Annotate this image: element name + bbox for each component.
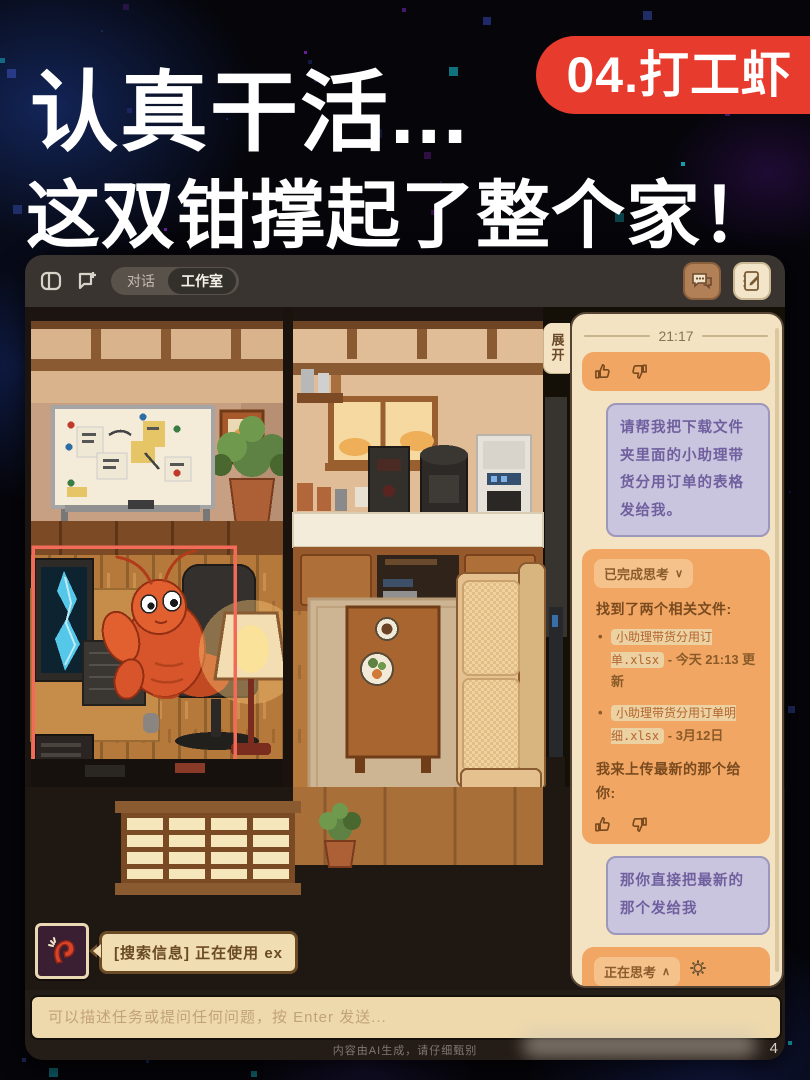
user-message-2: 那你直接把最新的那个发给我	[606, 856, 770, 935]
lobster-claw-icon	[45, 933, 79, 969]
episode-badge: 04.打工虾	[536, 36, 810, 114]
chevron-down-icon: ∨	[675, 567, 683, 580]
assistant-message-1: 已完成思考 ∨ 找到了两个相关文件: 小助理带货分用订单.xlsx - 今天 2…	[582, 549, 770, 844]
new-chat-button[interactable]	[75, 269, 99, 293]
new-chat-icon	[76, 270, 98, 292]
thumbs-up-button[interactable]	[594, 362, 613, 381]
status-speech-bubble: [搜索信息] 正在使用 ex	[99, 931, 298, 974]
notebook-edit-icon	[740, 269, 764, 293]
chevron-up-icon: ∧	[662, 965, 670, 978]
coffee-table	[347, 607, 439, 773]
messages-button[interactable]	[683, 262, 721, 300]
hero-header: 04.打工虾 认真干活... 这双钳撑起了整个家！	[0, 0, 810, 255]
hero-title-line2: 这双钳撑起了整个家！	[26, 156, 776, 263]
tab-chat[interactable]: 对话	[114, 268, 168, 294]
expand-tab-label: 展开	[548, 333, 567, 363]
message-input[interactable]	[46, 1008, 766, 1027]
ai-disclaimer: 内容由AI生成，请仔细甄别	[25, 1042, 785, 1058]
sidebar-toggle-button[interactable]	[39, 269, 63, 293]
hero-title-line1: 认真干活...	[30, 42, 469, 169]
thinking-collapse-pill[interactable]: 正在思考 ∧	[594, 957, 680, 986]
thought-collapse-pill[interactable]: 已完成思考 ∨	[594, 559, 693, 588]
lobster-avatar	[35, 923, 89, 979]
file-meta: - 3月12日	[668, 728, 724, 743]
user-message-1: 请帮我把下载文件夹里面的小助理带货分用订单的表格发给我。	[606, 403, 770, 537]
chat-bubbles-icon	[690, 269, 714, 293]
assistant-bubble-partial	[582, 352, 770, 391]
settings-gear-button[interactable]	[689, 959, 707, 977]
kitchen-living-room	[293, 321, 545, 867]
office-room	[31, 321, 303, 787]
sidebar-panel-icon	[40, 270, 62, 292]
expand-tab[interactable]: 展开	[544, 323, 570, 373]
thinking-pill-label: 正在思考	[604, 962, 656, 981]
assistant-message-2: 正在思考 ∧ 我已收	[582, 947, 770, 988]
file-list: 小助理带货分用订单.xlsx - 今天 21:13 更新 小助理带货分用订单明细…	[594, 626, 758, 748]
timestamp: 21:17	[658, 328, 693, 344]
page-number: 4	[770, 1040, 778, 1057]
app-window: 对话 工作室	[25, 255, 785, 1060]
window-footer: 内容由AI生成，请仔细甄别 4	[25, 1040, 785, 1060]
couch	[457, 563, 545, 797]
post-page: 04.打工虾 认真干活... 这双钳撑起了整个家！ 对话	[0, 0, 810, 1080]
coffee-machines	[369, 435, 531, 515]
action-status-bar: [搜索信息] 正在使用 ex	[35, 923, 298, 979]
thought-pill-label: 已完成思考	[604, 564, 669, 583]
thumbs-down-button[interactable]	[629, 362, 648, 381]
gear-icon	[689, 959, 707, 977]
assistant-outro: 我来上传最新的那个给你:	[596, 758, 756, 806]
file-item: 小助理带货分用订单明细.xlsx - 3月12日	[598, 702, 758, 748]
thumbs-up-button[interactable]	[594, 815, 613, 834]
notes-button[interactable]	[733, 262, 771, 300]
timestamp-row: 21:17	[584, 328, 768, 344]
thumbs-down-button[interactable]	[629, 815, 648, 834]
status-text: [搜索信息] 正在使用 ex	[114, 945, 283, 962]
view-tabs: 对话 工作室	[111, 267, 239, 295]
tab-studio[interactable]: 工作室	[168, 268, 236, 294]
shoji-screen	[115, 801, 301, 895]
chat-panel: 21:17 请帮我把下载文件夹里面的小助理带货分用订单的表格发给我。 已完成思考	[570, 312, 784, 988]
file-item: 小助理带货分用订单.xlsx - 今天 21:13 更新	[598, 626, 758, 694]
assistant-intro: 找到了两个相关文件:	[596, 598, 756, 622]
